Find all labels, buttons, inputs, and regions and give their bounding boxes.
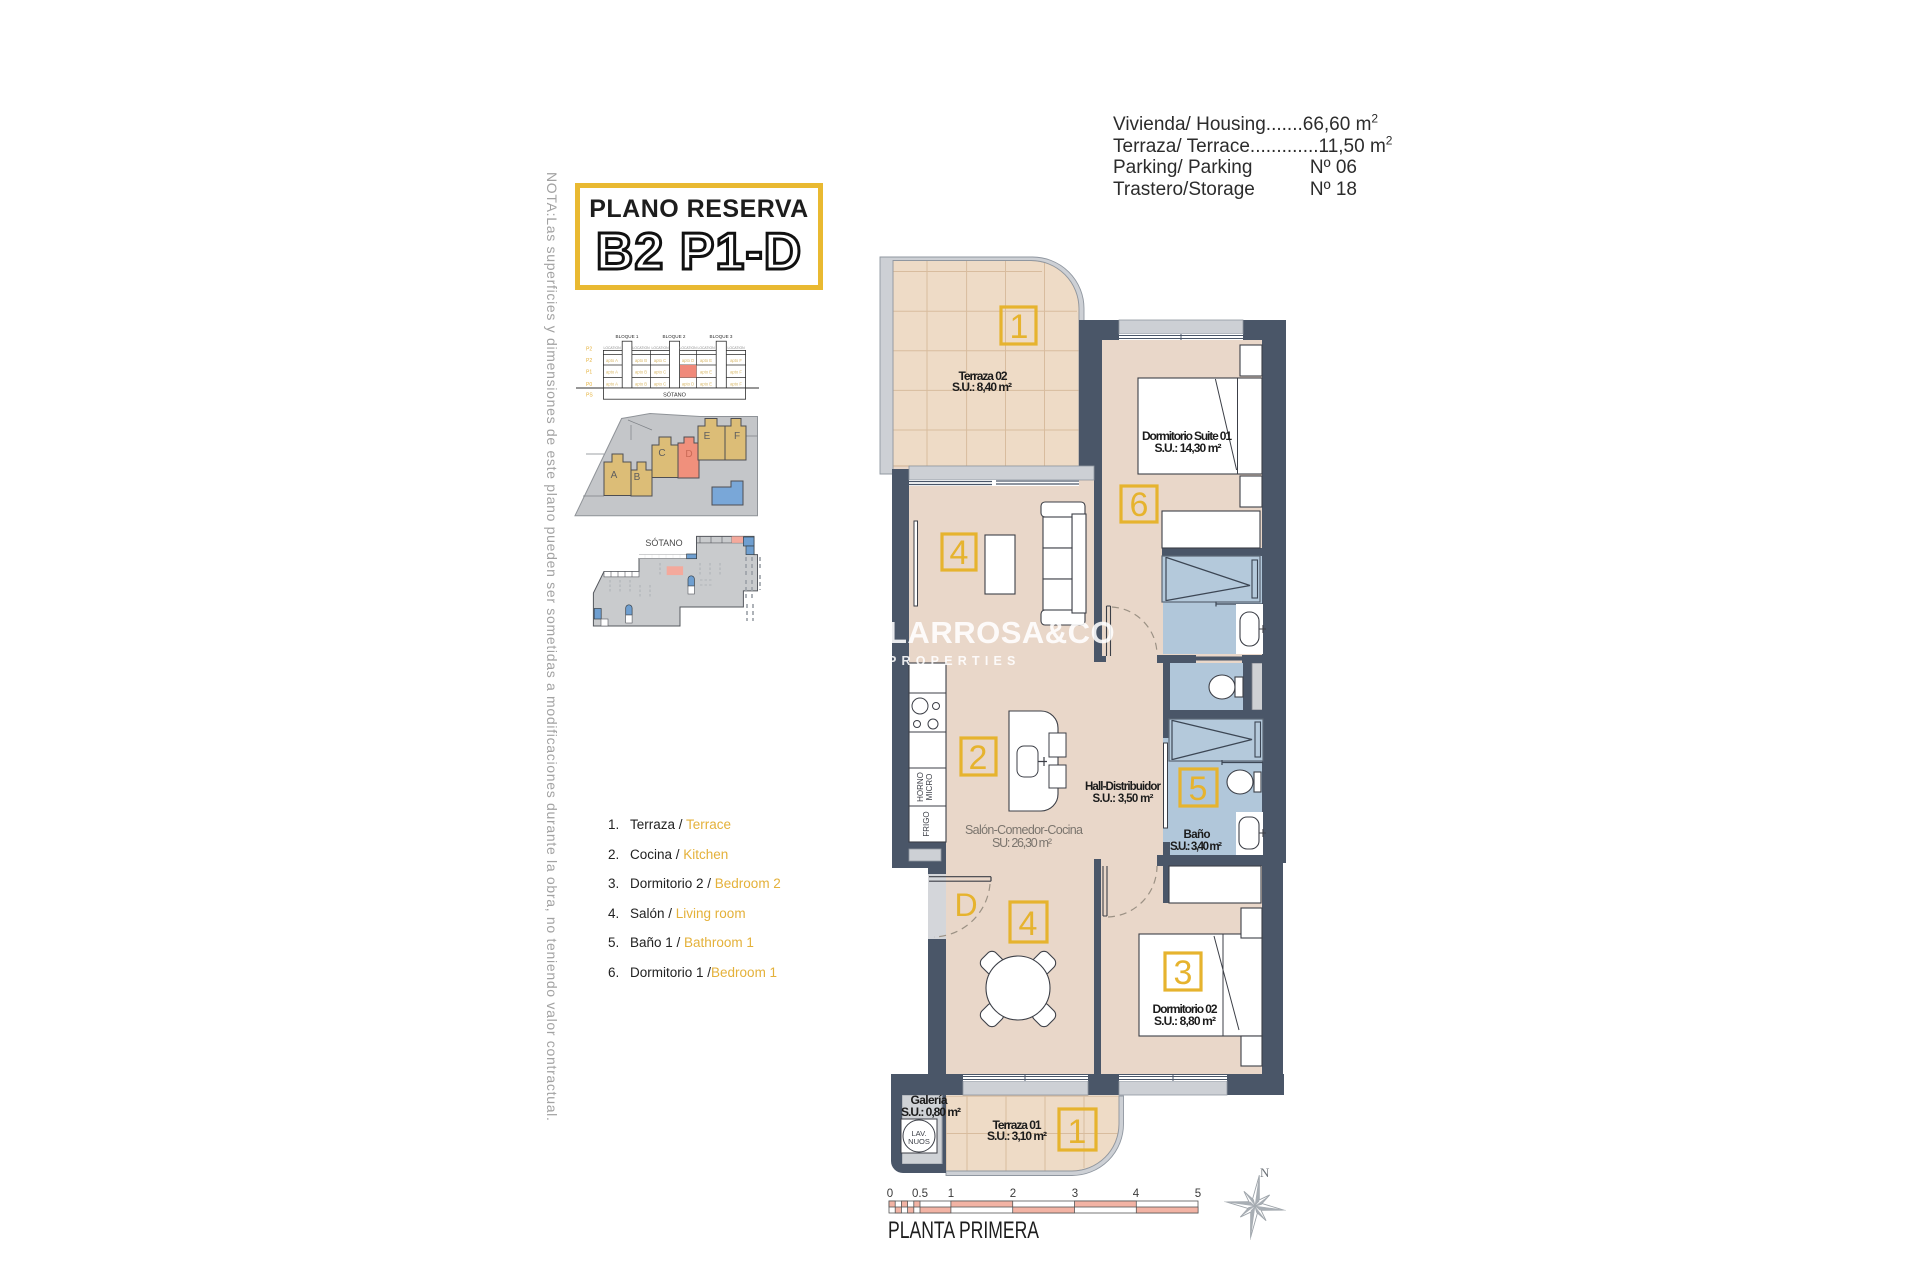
svg-text:Salón-Comedor-Cocina: Salón-Comedor-Cocina — [965, 823, 1083, 837]
svg-text:apto D: apto D — [682, 358, 694, 363]
svg-text:LOCATION: LOCATION — [651, 346, 669, 350]
svg-text:C: C — [658, 448, 665, 459]
svg-text:B: B — [634, 472, 641, 483]
svg-text:6: 6 — [1130, 486, 1149, 524]
svg-text:3: 3 — [1174, 954, 1193, 992]
svg-text:apto C: apto C — [654, 381, 666, 386]
svg-text:2: 2 — [1010, 1188, 1016, 1200]
svg-text:Baño: Baño — [1184, 829, 1211, 841]
svg-text:BLOQUE 2: BLOQUE 2 — [663, 334, 686, 339]
svg-text:LOCATION: LOCATION — [603, 346, 621, 350]
svg-text:BLOQUE 3: BLOQUE 3 — [710, 334, 733, 339]
svg-text:S.U.: 3,40 m²: S.U.: 3,40 m² — [1170, 841, 1222, 853]
svg-text:apto B: apto B — [635, 369, 647, 374]
svg-text:apto A: apto A — [606, 381, 618, 386]
svg-text:apto B: apto B — [635, 381, 647, 386]
svg-text:apto F: apto F — [730, 358, 742, 363]
svg-text:LOCATION: LOCATION — [697, 346, 715, 350]
svg-text:LOCATION: LOCATION — [679, 346, 697, 350]
svg-text:apto A: apto A — [606, 369, 618, 374]
svg-text:apto E: apto E — [700, 369, 712, 374]
svg-text:apto D: apto D — [682, 381, 694, 386]
svg-text:0: 0 — [887, 1188, 893, 1200]
svg-text:1: 1 — [1010, 308, 1029, 346]
svg-text:HORNO: HORNO — [916, 772, 925, 802]
svg-text:4: 4 — [1133, 1188, 1140, 1200]
svg-text:PLANTA PRIMERA: PLANTA PRIMERA — [888, 1217, 1039, 1244]
svg-text:apto A: apto A — [606, 358, 618, 363]
svg-text:MICRO: MICRO — [925, 774, 934, 801]
svg-text:P2: P2 — [586, 347, 592, 353]
svg-text:4: 4 — [950, 534, 969, 572]
svg-text:P1: P1 — [586, 370, 592, 376]
svg-text:S.U.: 3,50 m²: S.U.: 3,50 m² — [1093, 793, 1154, 805]
svg-text:D: D — [954, 887, 977, 923]
svg-text:apto C: apto C — [654, 369, 666, 374]
svg-text:5: 5 — [1195, 1188, 1201, 1200]
svg-text:SÓTANO: SÓTANO — [663, 392, 687, 399]
svg-text:S.U.: 14,30 m²: S.U.: 14,30 m² — [1155, 441, 1222, 455]
svg-text:apto F: apto F — [730, 381, 742, 386]
svg-text:3: 3 — [1072, 1188, 1078, 1200]
svg-text:1: 1 — [1068, 1113, 1087, 1151]
svg-text:Hall-Distribuidor: Hall-Distribuidor — [1085, 781, 1162, 793]
svg-text:LOCATION: LOCATION — [632, 346, 650, 350]
svg-text:S.U.: 3,10 m²: S.U.: 3,10 m² — [987, 1129, 1047, 1143]
svg-text:A: A — [611, 470, 618, 481]
svg-text:0.5: 0.5 — [912, 1188, 928, 1200]
svg-text:apto F: apto F — [730, 369, 742, 374]
svg-text:P0: P0 — [586, 382, 592, 388]
svg-text:2: 2 — [969, 739, 988, 777]
svg-text:N: N — [1260, 1165, 1270, 1180]
svg-text:D: D — [685, 449, 692, 460]
svg-text:S.U.: 0,80 m²: S.U.: 0,80 m² — [901, 1105, 961, 1119]
svg-text:F: F — [734, 431, 740, 442]
svg-text:SÓTANO: SÓTANO — [645, 538, 682, 548]
svg-text:apto C: apto C — [654, 358, 666, 363]
svg-text:LOCATION: LOCATION — [727, 346, 745, 350]
svg-text:SU: 26,30 m²: SU: 26,30 m² — [992, 836, 1052, 850]
svg-text:NUOS: NUOS — [908, 1137, 930, 1146]
svg-text:S.U.: 8,40 m²: S.U.: 8,40 m² — [952, 380, 1012, 394]
svg-text:4: 4 — [1019, 905, 1038, 943]
svg-text:PS: PS — [586, 393, 593, 399]
svg-text:apto E: apto E — [700, 381, 712, 386]
svg-text:E: E — [704, 431, 711, 442]
svg-text:1: 1 — [948, 1188, 954, 1200]
svg-text:apto E: apto E — [700, 358, 712, 363]
svg-text:BLOQUE 1: BLOQUE 1 — [616, 334, 639, 339]
svg-text:S.U.: 8,80 m²: S.U.: 8,80 m² — [1154, 1014, 1216, 1028]
svg-text:apto B: apto B — [635, 358, 647, 363]
svg-text:FRIGO: FRIGO — [922, 811, 931, 836]
svg-text:5: 5 — [1189, 770, 1208, 808]
svg-text:P2: P2 — [586, 358, 592, 364]
